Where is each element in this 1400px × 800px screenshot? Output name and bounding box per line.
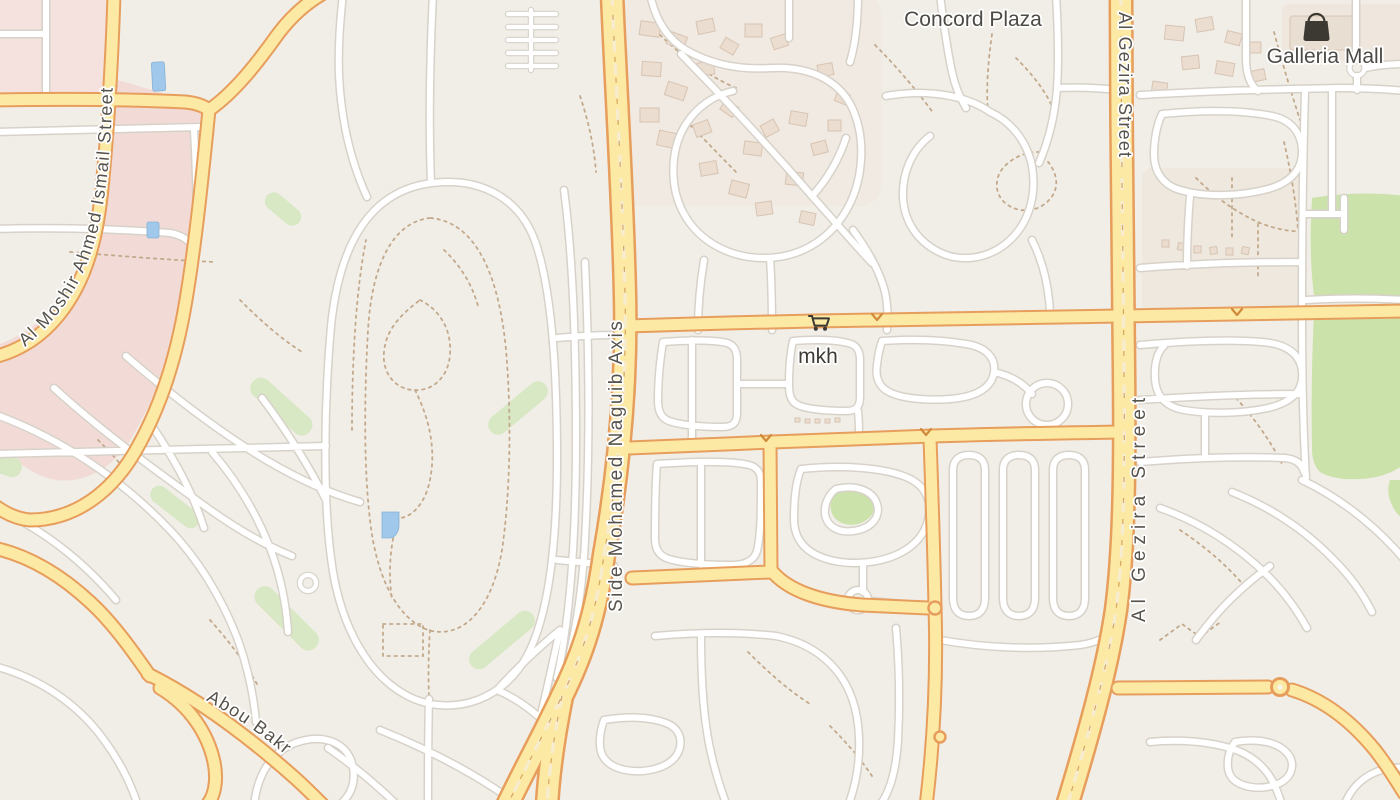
poi-label-mkh[interactable]: mkh xyxy=(798,345,838,368)
street-label-al-gezira-top: Al Gezira Street xyxy=(1115,12,1135,158)
map-canvas[interactable]: Concord Plaza Galleria Mall mkh Al Gezir… xyxy=(0,0,1400,800)
street-label-al-gezira-mid: Al Gezira Street xyxy=(1129,392,1150,622)
poi-label-galleria-mall[interactable]: Galleria Mall xyxy=(1267,45,1384,68)
poi-label-concord-plaza[interactable]: Concord Plaza xyxy=(904,8,1042,31)
street-label-naguib-axis: Side Mohamed Naguib Axis xyxy=(606,319,627,612)
